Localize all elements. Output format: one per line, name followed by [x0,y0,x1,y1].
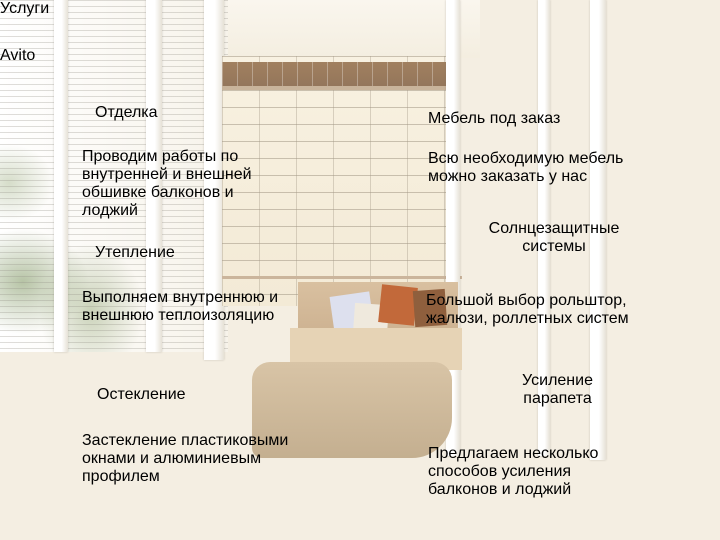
description-line: можно заказать у нас [428,168,683,186]
bullet-icon [378,390,424,436]
avito-brand-text: Avito [0,47,35,65]
description-line: Застекление пластиковыми [82,432,347,450]
heading-line: парапета [435,390,680,408]
avito-dot [0,36,11,47]
avito-dot [0,21,15,36]
service-heading: Усиление парапета [435,372,680,408]
avito-dot [0,0,9,9]
service-heading: Мебель под заказ [428,110,560,128]
description-line: внутренней и внешней [82,166,312,184]
description-line: способов усиления [428,463,663,481]
heading-line: Усиление [435,372,680,390]
avito-dot [0,9,12,21]
service-description: Проводим работы по внутренней и внешней … [82,148,312,220]
description-line: Проводим работы по [82,148,312,166]
service-description: Предлагаем несколько способов усиления б… [428,445,663,499]
service-heading: Остекление [97,386,186,404]
description-line: обшивке балконов и [82,184,312,202]
bullet-icon [378,114,424,160]
photo-brick-band [222,62,460,90]
service-description: Застекление пластиковыми окнами и алюмин… [82,432,347,486]
description-line: внешнюю теплоизоляцию [82,307,337,325]
service-heading: Отделка [95,104,158,122]
bullet-icon [376,233,426,283]
description-line: балконов и лоджий [428,481,663,499]
service-heading: Солнцезащитные системы [420,220,688,256]
service-description: Всю необходимую мебель можно заказать у … [428,150,683,186]
service-description: Выполняем внутреннюю и внешнюю теплоизол… [82,289,337,325]
description-line: Большой выбор рольштор, [426,292,694,310]
photo-flower [190,344,204,356]
avito-logo-icon [0,0,35,47]
description-line: Всю необходимую мебель [428,150,683,168]
description-line: Предлагаем несколько [428,445,663,463]
service-heading: Утепление [95,244,175,262]
bullet-icon [38,398,88,448]
description-line: лоджий [82,202,312,220]
description-line: окнами и алюминиевым [82,450,347,468]
heading-line: системы [420,238,688,256]
flyer-canvas: Услуги Отделка Проводим работы по внутре… [0,0,720,540]
bullet-icon [38,256,88,306]
bullet-icon [38,118,88,168]
description-line: Выполняем внутреннюю и [82,289,337,307]
heading-line: Солнцезащитные [420,220,688,238]
service-description: Большой выбор рольштор, жалюзи, роллетны… [426,292,694,328]
avito-watermark: Avito [0,0,35,65]
photo-flower [212,334,227,347]
description-line: жалюзи, роллетных систем [426,310,694,328]
description-line: профилем [82,468,347,486]
